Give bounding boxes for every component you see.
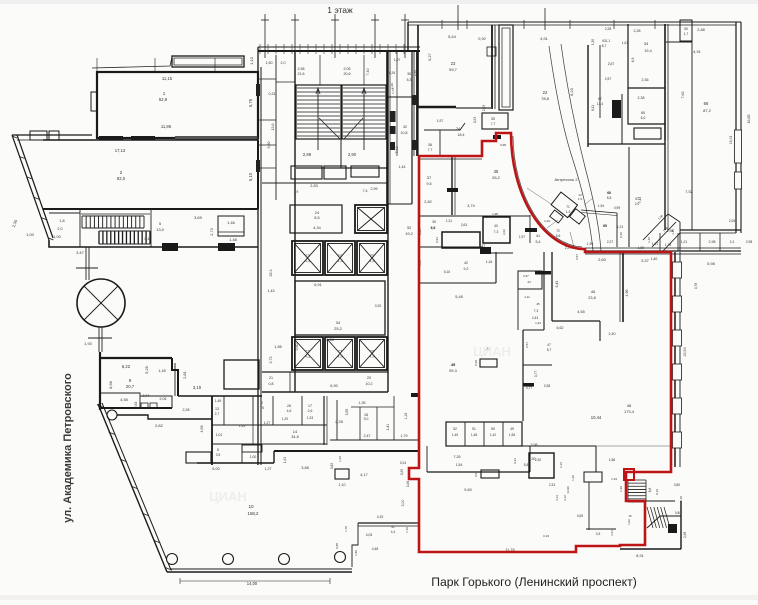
svg-text:3,19: 3,19: [193, 385, 202, 390]
svg-text:2,47: 2,47: [364, 434, 371, 438]
svg-text:0,57: 0,57: [575, 254, 579, 260]
svg-text:1,94: 1,94: [598, 204, 604, 208]
svg-text:0,91: 0,91: [435, 237, 439, 243]
svg-text:23,8: 23,8: [588, 296, 595, 300]
svg-text:2: 2: [261, 401, 263, 405]
svg-text:1,57: 1,57: [652, 242, 659, 246]
svg-text:0,24: 0,24: [400, 461, 406, 465]
svg-text:75: 75: [260, 406, 264, 410]
svg-text:2,28: 2,28: [634, 29, 641, 33]
svg-text:4,65: 4,65: [577, 310, 584, 314]
svg-text:Антресоль 2: Антресоль 2: [554, 177, 578, 182]
svg-text:2,05: 2,05: [344, 67, 351, 71]
svg-text:32: 32: [403, 125, 407, 129]
svg-text:59,3: 59,3: [449, 369, 456, 373]
svg-text:4,48: 4,48: [372, 547, 379, 551]
svg-text:2,41: 2,41: [386, 424, 390, 431]
svg-text:1,79: 1,79: [401, 434, 408, 438]
svg-text:65: 65: [641, 111, 645, 115]
svg-text:4,9: 4,9: [369, 354, 375, 359]
svg-text:0,80: 0,80: [674, 483, 680, 487]
svg-text:0,77: 0,77: [534, 371, 538, 377]
svg-text:1,40: 1,40: [651, 257, 658, 261]
svg-text:1,27: 1,27: [264, 421, 271, 425]
svg-text:1,45: 1,45: [158, 369, 165, 373]
svg-text:4,91: 4,91: [540, 36, 549, 41]
svg-text:1,43: 1,43: [535, 321, 541, 325]
svg-text:4,9: 4,9: [631, 58, 635, 63]
svg-text:8,11: 8,11: [591, 105, 595, 111]
svg-text:17: 17: [308, 404, 312, 408]
svg-text:82,0: 82,0: [117, 176, 126, 181]
svg-text:1,29: 1,29: [390, 83, 394, 89]
svg-text:3,60: 3,60: [295, 344, 299, 351]
svg-text:35: 35: [491, 117, 495, 121]
svg-text:45: 45: [451, 362, 456, 367]
svg-text:34: 34: [644, 41, 649, 46]
svg-text:1,45: 1,45: [452, 433, 458, 437]
svg-text:21,6: 21,6: [298, 72, 305, 76]
svg-text:1,7: 1,7: [684, 32, 689, 36]
svg-text:7,3: 7,3: [534, 309, 539, 313]
svg-text:1,48: 1,48: [229, 238, 236, 242]
svg-text:4,4: 4,4: [391, 530, 396, 534]
svg-text:1,9: 1,9: [294, 190, 299, 194]
svg-text:ул. Академика Петровского: ул. Академика Петровского: [62, 373, 74, 523]
svg-text:4,17: 4,17: [360, 473, 367, 477]
svg-text:1,97: 1,97: [437, 119, 444, 123]
svg-text:2,40: 2,40: [609, 332, 616, 336]
svg-text:10,44: 10,44: [591, 415, 602, 420]
svg-text:87,2: 87,2: [703, 108, 712, 113]
svg-text:2,81: 2,81: [182, 370, 187, 379]
svg-text:3,73: 3,73: [269, 357, 273, 364]
svg-text:0,93: 0,93: [473, 117, 477, 123]
svg-text:2,43: 2,43: [532, 316, 538, 320]
svg-text:21: 21: [269, 376, 273, 380]
svg-text:1,00: 1,00: [250, 455, 257, 459]
svg-text:1,86: 1,86: [609, 458, 616, 462]
svg-text:1,43: 1,43: [268, 289, 275, 293]
svg-text:2,4: 2,4: [730, 240, 735, 244]
svg-text:5,8: 5,8: [607, 196, 612, 200]
svg-text:7,7: 7,7: [428, 148, 433, 152]
svg-text:5,44: 5,44: [448, 34, 457, 39]
svg-text:0,8: 0,8: [269, 382, 274, 386]
svg-text:9,60: 9,60: [464, 488, 471, 492]
svg-text:19,2: 19,2: [405, 231, 414, 236]
svg-text:1,5: 1,5: [578, 197, 583, 201]
svg-text:10,2: 10,2: [366, 382, 373, 386]
svg-text:7,52: 7,52: [685, 190, 692, 194]
svg-text:1,93: 1,93: [84, 342, 91, 346]
svg-text:4,96: 4,96: [625, 290, 629, 297]
svg-text:0,98: 0,98: [500, 143, 506, 147]
svg-text:2,7: 2,7: [215, 412, 220, 416]
svg-text:1,35: 1,35: [359, 401, 366, 405]
svg-text:37: 37: [427, 175, 432, 180]
svg-text:2,99: 2,99: [371, 187, 378, 191]
svg-text:59,7: 59,7: [449, 67, 458, 72]
svg-text:9,30: 9,30: [267, 142, 271, 149]
svg-text:5,48: 5,48: [455, 295, 462, 299]
svg-text:49: 49: [510, 427, 514, 431]
svg-text:3,69: 3,69: [194, 215, 203, 220]
svg-text:1,33: 1,33: [307, 416, 313, 420]
svg-text:13,90: 13,90: [566, 486, 570, 494]
svg-text:4,58: 4,58: [120, 398, 127, 402]
svg-text:9,5: 9,5: [426, 182, 431, 186]
svg-text:15,03: 15,03: [729, 136, 733, 145]
svg-text:1,21: 1,21: [681, 240, 688, 244]
svg-text:2,28: 2,28: [605, 27, 612, 31]
svg-text:5: 5: [217, 448, 219, 452]
svg-text:2,36: 2,36: [642, 78, 649, 82]
svg-text:10: 10: [248, 504, 254, 509]
svg-text:2,98: 2,98: [746, 240, 753, 244]
svg-text:4,9: 4,9: [337, 354, 343, 359]
svg-text:1,92: 1,92: [283, 457, 287, 463]
svg-text:51: 51: [472, 427, 476, 431]
svg-text:2,33: 2,33: [549, 483, 555, 487]
svg-text:2,98: 2,98: [709, 240, 716, 244]
svg-text:78,8: 78,8: [541, 96, 550, 101]
svg-text:63: 63: [602, 39, 606, 43]
svg-text:18,4: 18,4: [458, 133, 465, 137]
svg-text:1,30: 1,30: [591, 39, 595, 45]
svg-text:0,69: 0,69: [577, 514, 583, 518]
svg-text:0,92: 0,92: [478, 37, 485, 41]
svg-text:2,49: 2,49: [679, 496, 683, 502]
svg-text:66: 66: [704, 101, 709, 106]
svg-text:50: 50: [491, 427, 495, 431]
svg-text:55: 55: [684, 27, 688, 31]
svg-text:1,85: 1,85: [274, 345, 281, 349]
svg-text:1,56: 1,56: [509, 433, 515, 437]
svg-text:3,00: 3,00: [401, 500, 405, 507]
svg-text:1,99: 1,99: [587, 242, 594, 246]
svg-text:6,6: 6,6: [648, 488, 652, 493]
svg-text:7,63: 7,63: [681, 92, 685, 99]
svg-text:3,98: 3,98: [531, 443, 538, 447]
svg-text:3,12: 3,12: [563, 495, 567, 501]
svg-text:2,98: 2,98: [683, 532, 687, 538]
svg-text:1,74: 1,74: [391, 88, 395, 94]
svg-text:45: 45: [536, 302, 540, 306]
svg-text:20,7: 20,7: [126, 384, 135, 389]
svg-text:1,48: 1,48: [647, 237, 651, 243]
svg-text:4,3: 4,3: [305, 354, 311, 359]
svg-text:0,20: 0,20: [619, 232, 623, 238]
svg-text:7,40: 7,40: [366, 69, 370, 76]
svg-text:47: 47: [547, 343, 551, 347]
svg-text:4,91: 4,91: [693, 50, 700, 54]
svg-text:1,00: 1,00: [53, 235, 60, 239]
svg-text:6,27: 6,27: [428, 53, 432, 60]
svg-text:16: 16: [628, 514, 632, 518]
svg-text:1,78: 1,78: [344, 526, 348, 532]
svg-text:1,49: 1,49: [215, 399, 222, 403]
svg-text:40: 40: [494, 224, 498, 228]
svg-text:0,53: 0,53: [134, 402, 138, 409]
svg-text:34: 34: [336, 320, 341, 325]
svg-text:0,74: 0,74: [143, 394, 150, 398]
svg-text:22: 22: [543, 90, 548, 95]
svg-text:36: 36: [428, 143, 432, 147]
svg-text:5,7: 5,7: [547, 348, 552, 352]
svg-text:30: 30: [407, 72, 411, 76]
svg-text:0,19: 0,19: [543, 534, 549, 538]
svg-text:0,77: 0,77: [526, 386, 533, 390]
svg-text:20,6: 20,6: [344, 72, 351, 76]
svg-text:0,46: 0,46: [406, 481, 410, 487]
svg-text:1,42: 1,42: [490, 433, 496, 437]
svg-text:7,4: 7,4: [363, 189, 368, 193]
svg-text:52: 52: [453, 427, 457, 431]
svg-text:6,22: 6,22: [122, 364, 131, 369]
svg-text:5,8: 5,8: [556, 234, 561, 238]
svg-text:2,28: 2,28: [335, 420, 342, 424]
svg-text:1,01: 1,01: [610, 530, 614, 536]
svg-text:5,26: 5,26: [145, 366, 149, 373]
svg-text:38: 38: [494, 169, 499, 174]
svg-text:6,91: 6,91: [314, 283, 321, 287]
svg-text:5,4: 5,4: [536, 240, 541, 244]
svg-text:2,60: 2,60: [598, 257, 607, 262]
svg-text:1,20: 1,20: [282, 417, 288, 421]
svg-text:173,4: 173,4: [624, 409, 635, 414]
svg-text:1,40: 1,40: [571, 475, 575, 481]
svg-text:2,0: 2,0: [635, 202, 640, 206]
svg-text:0,69: 0,69: [474, 360, 478, 366]
svg-text:0,46: 0,46: [145, 237, 152, 241]
svg-text:5,3: 5,3: [407, 78, 412, 82]
svg-text:34,8: 34,8: [291, 435, 298, 439]
svg-text:46: 46: [591, 289, 596, 294]
svg-text:8,91: 8,91: [636, 554, 643, 558]
svg-text:6,6: 6,6: [431, 226, 436, 230]
svg-text:5,16: 5,16: [444, 270, 450, 274]
svg-text:44: 44: [527, 280, 531, 284]
svg-text:1,02: 1,02: [627, 519, 631, 525]
svg-text:1,44: 1,44: [399, 165, 406, 169]
svg-text:2,27: 2,27: [607, 240, 614, 244]
svg-text:8,23: 8,23: [570, 88, 574, 95]
svg-text:5,98: 5,98: [707, 262, 714, 266]
svg-text:1,24: 1,24: [239, 424, 246, 428]
svg-text:ЦИАН: ЦИАН: [473, 344, 511, 359]
svg-text:1 этаж: 1 этаж: [327, 5, 353, 15]
svg-text:2,46: 2,46: [413, 70, 417, 76]
svg-text:1,26: 1,26: [338, 456, 342, 462]
svg-text:41: 41: [391, 525, 395, 529]
svg-text:2,38: 2,38: [638, 96, 645, 100]
svg-text:65: 65: [603, 224, 607, 228]
svg-text:3,55: 3,55: [345, 409, 349, 416]
svg-text:1,33: 1,33: [611, 477, 617, 481]
svg-text:8,7: 8,7: [602, 44, 607, 48]
svg-text:2,86: 2,86: [303, 152, 312, 157]
svg-text:2,30: 2,30: [535, 458, 541, 462]
svg-text:1,01: 1,01: [216, 433, 223, 437]
svg-text:0,31: 0,31: [269, 92, 276, 96]
svg-text:3,74: 3,74: [467, 204, 474, 208]
svg-text:1,11: 1,11: [524, 295, 530, 299]
svg-text:20: 20: [367, 376, 371, 380]
svg-text:1,1: 1,1: [606, 39, 611, 43]
svg-text:2,73: 2,73: [210, 228, 214, 235]
svg-text:ЦИАН: ЦИАН: [209, 489, 247, 504]
svg-text:0,07: 0,07: [474, 471, 478, 477]
svg-text:3,13: 3,13: [555, 495, 559, 501]
svg-text:6,43: 6,43: [555, 281, 559, 288]
svg-text:1,00: 1,00: [26, 232, 35, 237]
svg-text:11,15: 11,15: [162, 76, 173, 81]
svg-text:6,62: 6,62: [557, 326, 564, 330]
svg-text:0,82: 0,82: [330, 463, 334, 469]
svg-text:7,26: 7,26: [454, 455, 461, 459]
svg-text:0,23: 0,23: [513, 458, 517, 464]
svg-text:16,85: 16,85: [747, 115, 751, 124]
svg-text:13: 13: [215, 407, 219, 411]
svg-text:13,4: 13,4: [597, 102, 603, 106]
svg-text:2,90: 2,90: [348, 152, 357, 157]
svg-text:2,93: 2,93: [482, 105, 486, 111]
svg-text:1,46: 1,46: [227, 221, 234, 225]
svg-text:3,37: 3,37: [641, 258, 650, 263]
svg-text:71: 71: [566, 205, 570, 209]
svg-text:0,19: 0,19: [655, 489, 659, 495]
svg-text:3,47: 3,47: [76, 250, 85, 255]
svg-text:0,80: 0,80: [675, 511, 681, 515]
svg-text:2,88: 2,88: [697, 28, 704, 32]
svg-text:2,82: 2,82: [155, 423, 164, 428]
svg-text:1,8: 1,8: [59, 219, 64, 223]
svg-text:14,00: 14,00: [247, 581, 258, 586]
svg-text:2,58: 2,58: [298, 67, 305, 71]
svg-text:1,10: 1,10: [339, 483, 346, 487]
svg-text:4,3: 4,3: [305, 258, 311, 263]
svg-text:2,0: 2,0: [57, 227, 62, 231]
svg-text:2,82: 2,82: [424, 200, 431, 204]
svg-text:5,76: 5,76: [248, 98, 253, 107]
svg-text:2,0: 2,0: [281, 61, 286, 65]
svg-text:26: 26: [287, 404, 291, 408]
svg-text:8,5: 8,5: [314, 216, 319, 220]
svg-text:13,0: 13,0: [156, 227, 165, 232]
svg-text:158,2: 158,2: [248, 511, 260, 516]
svg-text:24: 24: [315, 210, 320, 215]
svg-text:0,95: 0,95: [400, 469, 404, 475]
svg-text:0,88: 0,88: [335, 543, 339, 549]
svg-text:19,4: 19,4: [644, 49, 651, 53]
svg-text:4,6: 4,6: [287, 409, 292, 413]
svg-text:2,61: 2,61: [461, 223, 468, 227]
svg-text:57: 57: [635, 197, 639, 201]
svg-text:1,80: 1,80: [354, 550, 358, 556]
svg-text:7,7: 7,7: [491, 122, 496, 126]
svg-text:41: 41: [536, 234, 540, 238]
svg-text:0,38: 0,38: [544, 384, 550, 388]
svg-text:9,2: 9,2: [464, 267, 469, 271]
svg-text:67: 67: [598, 97, 602, 101]
svg-text:1,78: 1,78: [665, 243, 672, 247]
svg-text:1,40: 1,40: [619, 486, 623, 492]
svg-text:0,99: 0,99: [614, 206, 620, 210]
svg-text:2,16: 2,16: [559, 462, 563, 468]
svg-text:1,19: 1,19: [404, 413, 408, 420]
svg-text:0,20: 0,20: [375, 304, 382, 308]
svg-text:3,88: 3,88: [301, 466, 308, 470]
svg-text:2,57: 2,57: [605, 77, 612, 81]
svg-text:1,3: 1,3: [566, 210, 571, 214]
svg-text:1,97: 1,97: [519, 235, 525, 239]
svg-text:2,04: 2,04: [160, 397, 167, 401]
svg-text:72: 72: [556, 229, 560, 233]
svg-text:13,6: 13,6: [271, 124, 275, 131]
svg-text:25,3: 25,3: [269, 270, 273, 277]
svg-text:25,2: 25,2: [334, 326, 343, 331]
svg-text:Парк Горького (Ленинский просп: Парк Горького (Ленинский проспект): [431, 575, 637, 589]
svg-text:32: 32: [407, 225, 412, 230]
svg-text:2,57: 2,57: [525, 342, 529, 348]
svg-text:6,0: 6,0: [641, 116, 646, 120]
svg-text:1,48: 1,48: [471, 433, 477, 437]
svg-text:1,37: 1,37: [479, 244, 485, 248]
svg-text:24: 24: [456, 127, 460, 131]
svg-text:15,94: 15,94: [683, 347, 687, 357]
svg-text:26,2: 26,2: [492, 175, 501, 180]
svg-text:2,67: 2,67: [608, 62, 615, 66]
svg-text:5,8: 5,8: [524, 463, 529, 467]
svg-text:6,00: 6,00: [212, 467, 219, 471]
svg-text:0,26: 0,26: [389, 71, 395, 75]
svg-text:2,6: 2,6: [308, 409, 313, 413]
svg-text:1,23: 1,23: [617, 225, 623, 229]
svg-text:4,19: 4,19: [377, 515, 384, 519]
svg-text:39: 39: [432, 220, 436, 224]
svg-text:2,02: 2,02: [502, 229, 506, 235]
svg-text:1,16: 1,16: [486, 260, 493, 264]
svg-text:14: 14: [293, 429, 298, 434]
svg-text:0,97: 0,97: [523, 274, 529, 278]
svg-text:52,9: 52,9: [159, 97, 168, 102]
svg-text:4,9: 4,9: [369, 258, 375, 263]
svg-text:4,03: 4,03: [366, 533, 373, 537]
svg-text:10,8: 10,8: [401, 131, 408, 135]
svg-text:42: 42: [464, 261, 468, 265]
svg-text:4,69: 4,69: [200, 426, 204, 433]
svg-text:1,03: 1,03: [544, 219, 550, 223]
svg-text:1,31: 1,31: [446, 219, 452, 223]
svg-text:4,34: 4,34: [313, 226, 320, 230]
svg-text:23: 23: [451, 61, 456, 66]
svg-text:11,86: 11,86: [161, 124, 172, 129]
svg-text:8,98: 8,98: [109, 381, 113, 388]
svg-text:1,50: 1,50: [266, 61, 273, 65]
svg-text:17,13: 17,13: [115, 148, 126, 153]
svg-text:4,3: 4,3: [337, 258, 343, 263]
svg-text:2,83: 2,83: [310, 184, 317, 188]
svg-text:3,5: 3,5: [596, 532, 601, 536]
svg-text:5,10: 5,10: [248, 172, 253, 181]
svg-text:48: 48: [627, 403, 632, 408]
svg-text:6,90: 6,90: [330, 384, 337, 388]
svg-text:1,10: 1,10: [249, 56, 254, 65]
svg-text:68: 68: [607, 191, 611, 195]
svg-text:7,3: 7,3: [494, 230, 499, 234]
svg-text:0,78: 0,78: [694, 283, 698, 289]
